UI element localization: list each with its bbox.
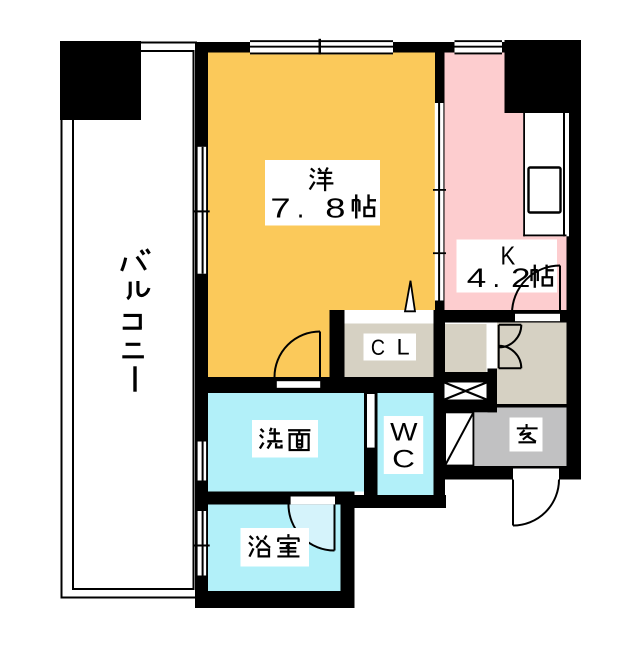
svg-text:4: 4 bbox=[467, 263, 487, 293]
svg-text:C: C bbox=[392, 445, 415, 473]
svg-text:8: 8 bbox=[325, 193, 345, 224]
svg-text:L: L bbox=[396, 334, 409, 359]
svg-text:.: . bbox=[492, 263, 500, 293]
svg-text:.: . bbox=[297, 192, 305, 223]
svg-text:C: C bbox=[371, 336, 385, 361]
svg-text:W: W bbox=[390, 419, 418, 447]
svg-text:7: 7 bbox=[270, 193, 290, 224]
